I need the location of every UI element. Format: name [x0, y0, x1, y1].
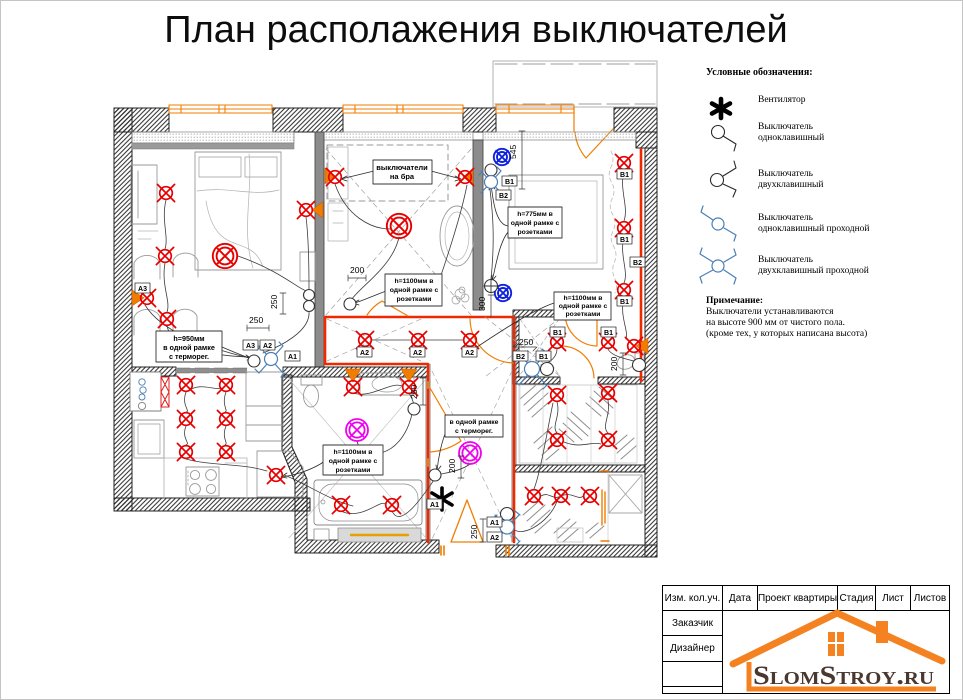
svg-text:SlomStroy.ru: SlomStroy.ru — [753, 661, 934, 690]
svg-text:одной рамке с: одной рамке с — [390, 286, 439, 294]
svg-text:B1: B1 — [620, 299, 629, 306]
svg-text:в одной рамке: в одной рамке — [450, 418, 499, 426]
svg-text:A2: A2 — [263, 343, 272, 350]
svg-text:A1: A1 — [288, 354, 297, 361]
svg-text:h=1100мм в: h=1100мм в — [334, 449, 373, 456]
svg-text:250: 250 — [249, 315, 263, 325]
svg-text:h=1100мм в: h=1100мм в — [564, 295, 603, 302]
svg-text:розетками: розетками — [397, 296, 432, 303]
svg-text:одной рамке с: одной рамке с — [511, 219, 560, 227]
svg-text:розетками: розетками — [336, 467, 371, 474]
svg-text:B2: B2 — [516, 354, 525, 361]
svg-text:250: 250 — [409, 385, 419, 399]
svg-text:A1: A1 — [430, 502, 439, 509]
svg-text:B2: B2 — [499, 193, 508, 200]
svg-text:с терморег.: с терморег. — [455, 428, 493, 435]
svg-text:A2: A2 — [465, 350, 474, 357]
svg-text:A3: A3 — [246, 343, 255, 350]
svg-text:200: 200 — [609, 357, 619, 371]
svg-text:B1: B1 — [620, 237, 629, 244]
svg-text:розетками: розетками — [566, 311, 601, 318]
svg-text:200: 200 — [447, 459, 457, 473]
svg-text:B1: B1 — [620, 172, 629, 179]
svg-text:h=1100мм в: h=1100мм в — [395, 278, 434, 285]
svg-text:A2: A2 — [490, 535, 499, 542]
svg-text:A2: A2 — [360, 350, 369, 357]
svg-text:h=950мм: h=950мм — [173, 334, 204, 343]
svg-text:розетками: розетками — [518, 229, 553, 236]
svg-text:одной рамке с: одной рамке с — [559, 302, 608, 310]
svg-text:выключатели: выключатели — [376, 163, 428, 172]
svg-text:B1: B1 — [539, 354, 548, 361]
svg-text:с терморег.: с терморег. — [169, 352, 209, 361]
svg-text:B1: B1 — [604, 330, 613, 337]
svg-text:200: 200 — [350, 265, 364, 275]
svg-text:250: 250 — [269, 295, 279, 309]
svg-text:B1: B1 — [505, 179, 514, 186]
svg-text:545: 545 — [508, 145, 518, 159]
svg-text:A1: A1 — [490, 520, 499, 527]
svg-text:A3: A3 — [138, 286, 147, 293]
svg-text:h=775мм в: h=775мм в — [517, 211, 553, 218]
svg-text:300: 300 — [477, 297, 487, 311]
svg-text:250: 250 — [519, 337, 533, 347]
svg-text:250: 250 — [469, 525, 479, 539]
svg-text:в одной рамке: в одной рамке — [163, 343, 215, 352]
svg-text:B1: B1 — [553, 330, 562, 337]
svg-text:на бра: на бра — [390, 172, 415, 181]
svg-text:B2: B2 — [633, 260, 642, 267]
svg-text:A2: A2 — [413, 350, 422, 357]
svg-text:одной рамке с: одной рамке с — [329, 457, 378, 465]
